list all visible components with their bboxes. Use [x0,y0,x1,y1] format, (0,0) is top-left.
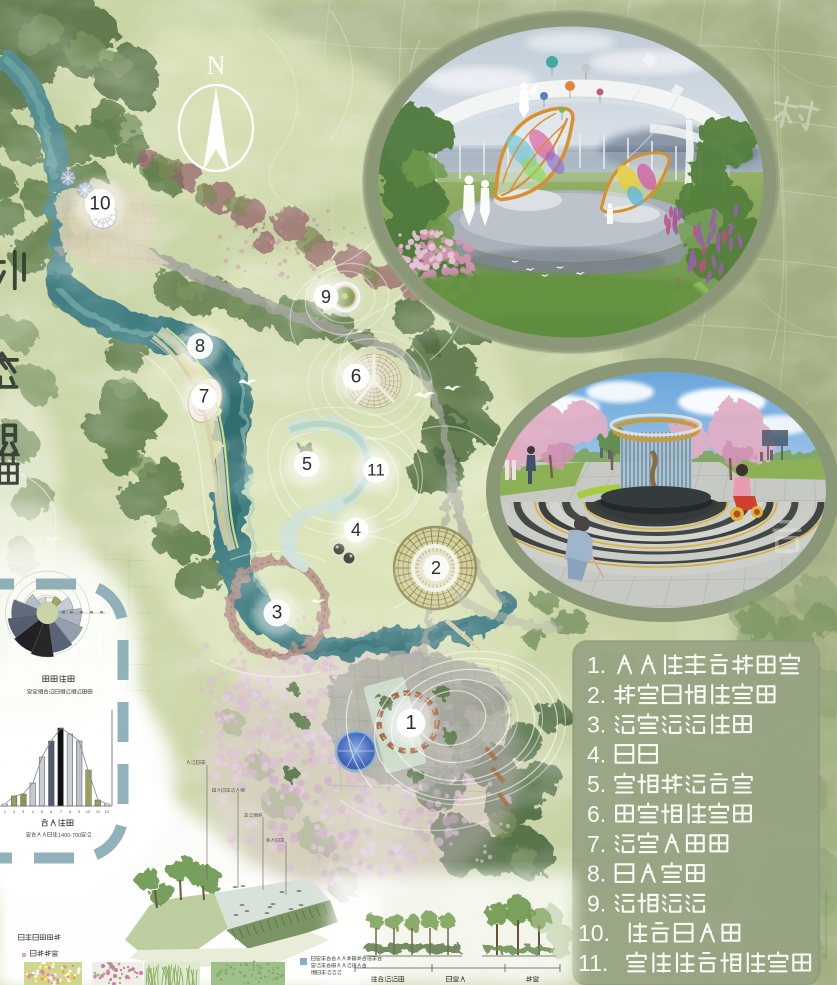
svg-text:1: 1 [405,712,416,734]
svg-text:1400-700: 1400-700 [58,833,81,839]
svg-text:2: 2 [431,558,441,578]
svg-text:11.: 11. [578,950,608,976]
svg-text:12: 12 [105,809,110,814]
svg-text:4: 4 [351,520,361,540]
svg-text:8: 8 [195,336,205,356]
svg-text:4.: 4. [587,741,606,767]
svg-text:8.: 8. [587,861,606,887]
svg-text:1.: 1. [587,652,606,678]
svg-text:10: 10 [89,194,110,215]
svg-text:9: 9 [321,287,331,307]
svg-text:3: 3 [272,603,283,624]
svg-text:7.: 7. [587,831,606,857]
svg-text:3.: 3. [587,712,606,738]
svg-text:N: N [207,51,226,80]
svg-text:5: 5 [302,454,312,474]
svg-text:10: 10 [86,809,91,814]
svg-text:7: 7 [199,387,210,408]
svg-text:9.: 9. [587,890,606,916]
svg-text:2.: 2. [587,682,606,708]
svg-text:10.: 10. [578,920,610,946]
svg-text:11: 11 [367,461,385,480]
svg-text:5.: 5. [587,771,606,797]
svg-text:6.: 6. [587,801,606,827]
svg-text:6: 6 [351,367,362,388]
